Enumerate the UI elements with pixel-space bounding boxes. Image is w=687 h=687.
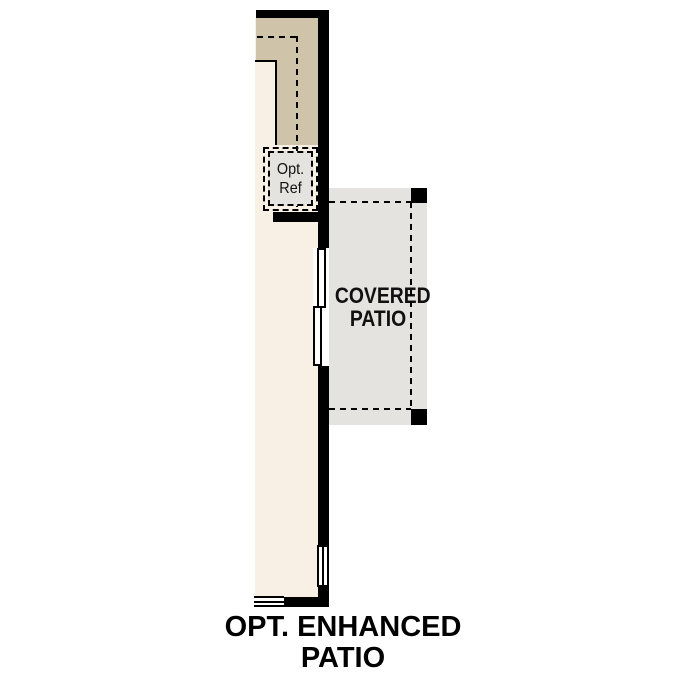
covered-patio-area: COVERED PATIO bbox=[329, 188, 427, 425]
counter-notch bbox=[255, 60, 277, 145]
window-mullion bbox=[322, 547, 324, 585]
patio-dashed-line-right bbox=[410, 202, 412, 409]
patio-dashed-line-bottom bbox=[329, 408, 411, 410]
opt-ref-label: Opt. Ref bbox=[270, 151, 311, 206]
patio-post-bottom bbox=[411, 409, 427, 425]
window-bottom bbox=[254, 596, 284, 607]
patio-dashed-line-top bbox=[329, 201, 411, 203]
wall-right-middle bbox=[318, 366, 329, 545]
wall-ref-return bbox=[273, 212, 318, 222]
wall-bottom bbox=[284, 597, 329, 607]
plan-title: OPT. ENHANCED PATIO bbox=[193, 612, 493, 674]
patio-post-top bbox=[411, 188, 427, 203]
sliding-door-panel-upper bbox=[317, 248, 326, 308]
window-right bbox=[317, 545, 329, 587]
counter-dashed-line-h bbox=[257, 36, 298, 38]
window-mullion bbox=[254, 601, 284, 603]
wall-right-upper bbox=[318, 10, 329, 248]
covered-patio-label: COVERED PATIO bbox=[335, 284, 421, 330]
floorplan-canvas: COVERED PATIO Opt. Ref OPT. ENHANCED PAT… bbox=[0, 0, 687, 687]
sliding-door-panel-lower bbox=[313, 306, 322, 366]
